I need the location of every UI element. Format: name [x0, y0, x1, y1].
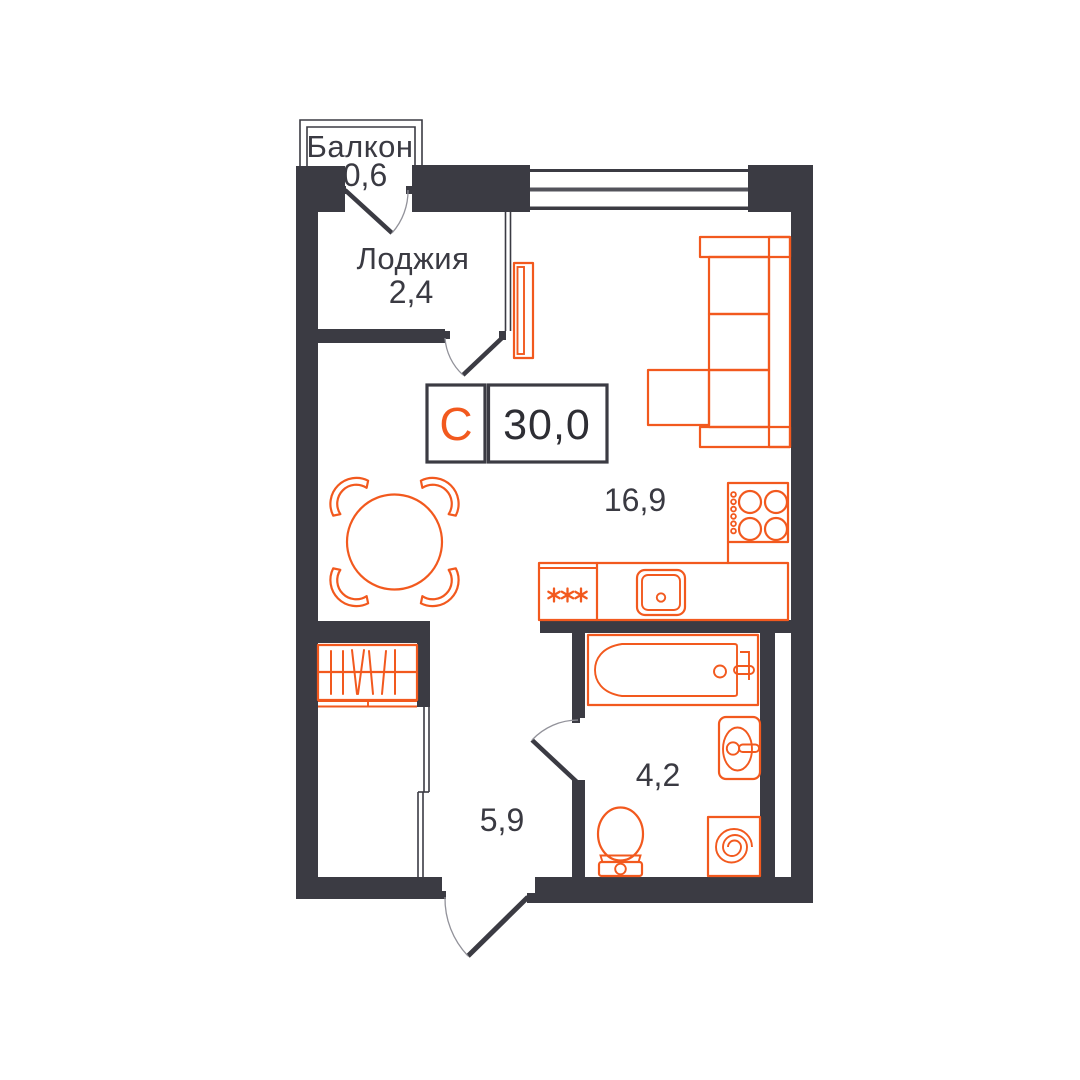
- wardrobe: [318, 645, 417, 707]
- loggia-cabinet: [514, 263, 533, 358]
- wall-right: [791, 165, 813, 903]
- dining-table-set: [321, 468, 469, 616]
- floor-plan-svg: Балкон 0,6 Лоджия 2,4 16,9 4,2 5,9 С 30,…: [0, 0, 1080, 1080]
- sofa-armrest-bottom: [700, 427, 790, 447]
- toilet-bowl: [598, 808, 643, 861]
- entrance-door: [445, 897, 528, 956]
- washbasin: [719, 717, 760, 779]
- dining-table: [347, 495, 442, 590]
- wall-bottom-right: [535, 877, 813, 903]
- sofa-seat: [709, 314, 769, 370]
- stove: [728, 483, 788, 542]
- bathtub: [588, 635, 758, 705]
- stove-burner: [739, 518, 761, 540]
- stove-burner: [765, 518, 787, 540]
- balcony-door: [345, 190, 408, 233]
- wall-bath-left-upper: [572, 633, 585, 718]
- dining-chair: [321, 468, 371, 518]
- window-outer-line: [530, 169, 748, 172]
- wall-top-block-left: [296, 166, 345, 212]
- wall-bath-shaft: [760, 633, 775, 878]
- badge-total-area: 30,0: [503, 401, 591, 449]
- stove-knobs: [731, 492, 736, 533]
- fridge-marks: [548, 589, 586, 602]
- loggia-door-jamb: [443, 331, 450, 339]
- wall-closet-strip: [417, 643, 430, 707]
- loggia-label: Лоджия: [357, 241, 470, 276]
- wall-left: [296, 166, 318, 899]
- washbasin-drain: [727, 742, 739, 754]
- bathroom-door-leaf: [532, 740, 578, 783]
- loggia-door: [445, 338, 502, 375]
- entrance-door-swing: [445, 897, 468, 956]
- loggia-area: 2,4: [389, 274, 433, 310]
- balcony-door-leaf: [345, 190, 392, 233]
- bathtub-drain: [714, 666, 726, 678]
- stove-burner: [765, 491, 787, 513]
- wall-closet-top: [318, 621, 430, 643]
- balcony-door-jamb-right: [406, 186, 413, 194]
- wall-top-block-center: [412, 165, 530, 212]
- badge-type-letter: С: [439, 398, 472, 450]
- balcony-door-swing: [392, 190, 408, 233]
- dining-chair: [418, 468, 468, 518]
- washing-machine: [708, 817, 760, 876]
- entrance-door-leaf: [468, 897, 528, 956]
- balcony-area: 0,6: [343, 157, 387, 193]
- kitchen-counter: [539, 542, 788, 620]
- bathroom-area: 4,2: [636, 757, 680, 793]
- window-inner-line: [530, 207, 748, 211]
- stove-burner: [739, 491, 761, 513]
- sofa-chaise: [648, 370, 709, 425]
- hall-area: 5,9: [480, 802, 524, 838]
- loggia-door-leaf: [463, 338, 502, 375]
- wall-loggia-bottom: [318, 329, 445, 343]
- window-glass-line: [530, 188, 748, 192]
- wall-bath-left-lower: [572, 780, 585, 878]
- washing-machine-drum-spiral: [716, 829, 752, 863]
- window-top: [530, 169, 748, 210]
- kitchen-sink: [637, 570, 685, 615]
- sofa-seat: [709, 370, 769, 427]
- bathtub-inner: [595, 644, 737, 696]
- washbasin-faucet: [739, 745, 759, 753]
- dining-chair: [321, 566, 371, 616]
- sofa-seat: [709, 257, 769, 314]
- toilet-flush-button: [615, 864, 626, 875]
- sofa-armrest-top: [700, 237, 790, 257]
- room-labels: Балкон 0,6 Лоджия 2,4 16,9 4,2 5,9: [307, 129, 681, 838]
- dining-chair: [418, 566, 468, 616]
- cabinet-door: [518, 267, 525, 354]
- partitions: [418, 212, 511, 877]
- toilet: [598, 808, 643, 877]
- sofa: [648, 237, 790, 447]
- living-area: 16,9: [604, 482, 666, 518]
- bathroom-door-swing: [532, 720, 578, 740]
- floor-plan-page: Балкон 0,6 Лоджия 2,4 16,9 4,2 5,9 С 30,…: [0, 0, 1080, 1080]
- bathroom-door: [532, 720, 578, 783]
- loggia-door-swing: [445, 338, 463, 375]
- sink-drain: [657, 593, 665, 601]
- wall-kitchen-bottom: [540, 620, 813, 633]
- type-area-badge: С 30,0: [427, 385, 607, 462]
- wall-bottom-left: [296, 877, 442, 899]
- sofa-backrest: [769, 237, 790, 447]
